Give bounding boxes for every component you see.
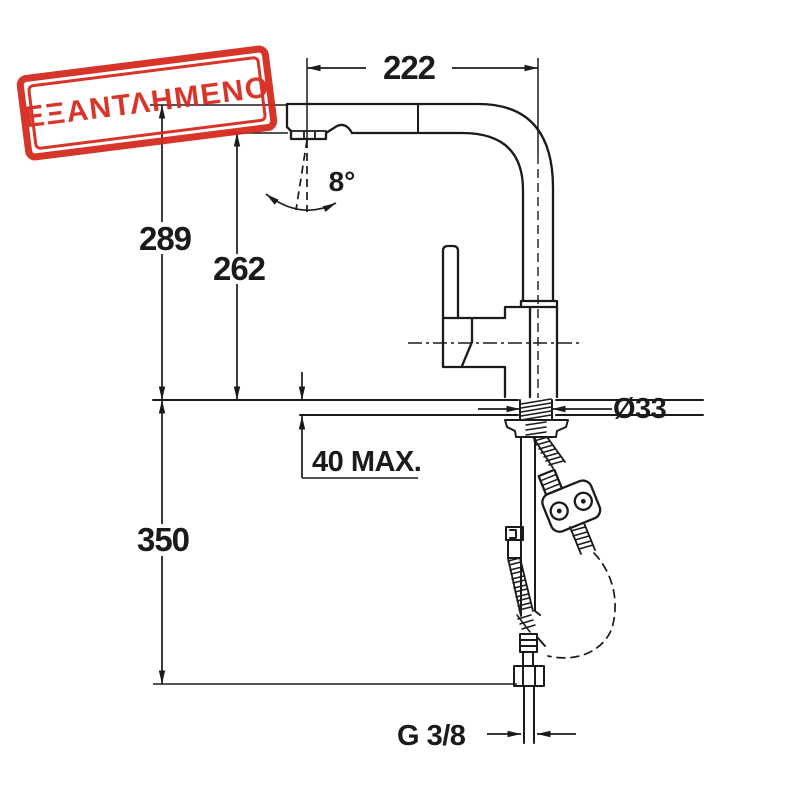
dim-spray-angle: 8° xyxy=(329,166,356,197)
spout-bottom-edge xyxy=(352,133,523,301)
hose-loop-dashed xyxy=(548,553,615,658)
body-outline xyxy=(443,307,557,397)
centerlines xyxy=(408,155,580,398)
handle-lever xyxy=(443,246,458,318)
flex-hose-end-ribs xyxy=(517,615,535,632)
hose-weight xyxy=(532,459,603,534)
dimension-lines xyxy=(150,58,612,734)
flex-hose-lower-ribs xyxy=(508,558,531,610)
dim-hose-drop: 350 xyxy=(137,521,189,558)
faucet-spec-sheet: 222 289 262 350 8° 40 MAX. Ø33 G 3/8 ΕΞΑ… xyxy=(0,0,800,800)
sold-out-stamp-text: ΕΞΑΝΤΛΗΜΕΝΟ xyxy=(22,71,271,136)
dim-spout-reach: 222 xyxy=(383,49,436,86)
connection-pipe xyxy=(524,686,534,743)
dim-hole-diameter: Ø33 xyxy=(613,393,667,425)
aerator-detail xyxy=(291,131,326,139)
dim-connection-thread: G 3/8 xyxy=(397,720,466,752)
faucet-outline xyxy=(287,104,615,743)
pullout-head xyxy=(287,104,352,139)
hose-fitting xyxy=(520,634,545,666)
flange-threads xyxy=(526,422,546,435)
dim-counter-thickness: 40 MAX. xyxy=(312,446,421,478)
guide-tube xyxy=(521,437,540,615)
flex-hose-upper-ribs xyxy=(534,437,563,465)
hex-nut xyxy=(514,666,544,686)
shank-threads xyxy=(521,399,551,420)
dim-overall-height: 289 xyxy=(139,220,192,257)
dim-outlet-height: 262 xyxy=(213,250,266,287)
